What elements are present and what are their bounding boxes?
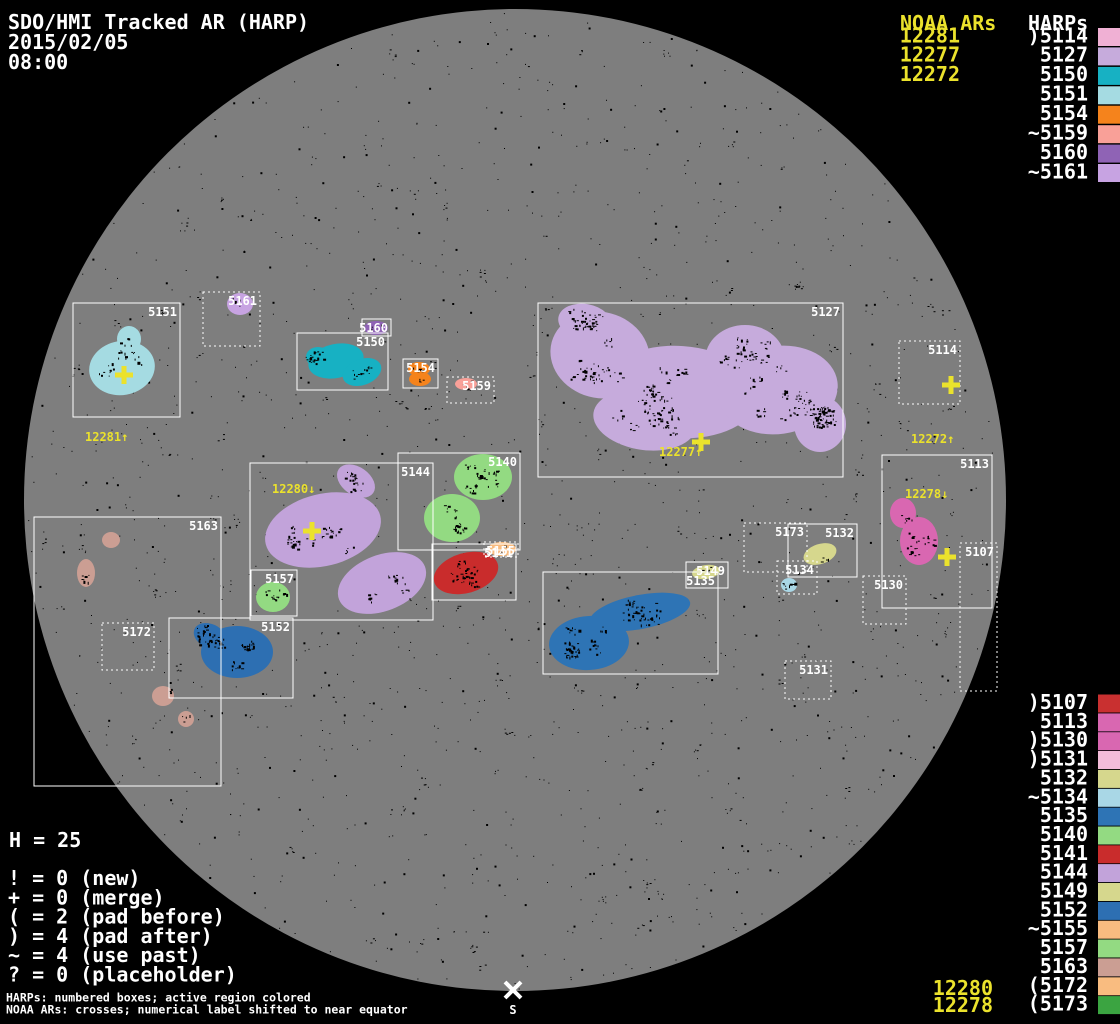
harp-color-swatch (1098, 28, 1120, 46)
harp-box-label-5144: 5144 (401, 465, 430, 479)
noaa-top-list: 122811227712272 (900, 23, 960, 86)
active-region-blob-5150 (306, 347, 330, 367)
harp-box-label-5152: 5152 (261, 620, 290, 634)
harp-list-item: ~5161 (1028, 159, 1088, 183)
active-region-blob-5163 (178, 711, 194, 727)
harp-box-label-5160: 5160 (359, 321, 388, 335)
harp-box-label-5173: 5173 (775, 525, 804, 539)
harp-color-swatch (1098, 883, 1120, 901)
harp-color-swatch (1098, 106, 1120, 124)
harp-color-swatch (1098, 86, 1120, 104)
footnote-noaa: NOAA ARs: crosses; numerical label shift… (6, 1003, 408, 1017)
harp-box-label-5149: 5149 (696, 564, 725, 578)
harp-color-swatch (1098, 827, 1120, 845)
harps-bottom-list: )51075113)5130)51315132~5134513551405141… (1028, 690, 1120, 1016)
active-region-blob-5113 (890, 498, 916, 528)
harp-color-swatch (1098, 770, 1120, 788)
harp-color-swatch (1098, 125, 1120, 143)
harp-box-label-5140: 5140 (488, 455, 517, 469)
noaa-disk-label: 12281↑ (85, 430, 128, 444)
harp-box-label-5161: 5161 (228, 294, 257, 308)
harp-color-swatch (1098, 977, 1120, 995)
harp-box-label-5107: 5107 (965, 545, 994, 559)
harp-color-swatch (1098, 789, 1120, 807)
noaa-list-item: 12278 (933, 993, 993, 1017)
harp-count: H = 25 (9, 828, 81, 852)
active-region-blob-5127 (705, 325, 785, 395)
harp-list-item: (5173 (1028, 992, 1088, 1016)
noaa-bottom-list: 1228012278 (933, 976, 993, 1017)
noaa-disk-label: 12272↑ (911, 432, 954, 446)
noaa-disk-label: 12277↑ (659, 445, 702, 459)
harp-color-swatch (1098, 902, 1120, 920)
harp-box-label-5131: 5131 (799, 663, 828, 677)
harp-color-swatch (1098, 751, 1120, 769)
harp-box-label-5130: 5130 (874, 578, 903, 592)
harp-box-label-5157: 5157 (265, 572, 294, 586)
harp-box-label-5155: 5155 (486, 544, 515, 558)
harp-box-label-5159: 5159 (462, 379, 491, 393)
harp-color-swatch (1098, 958, 1120, 976)
noaa-disk-label: 12278↓ (905, 487, 948, 501)
harp-color-swatch (1098, 940, 1120, 958)
harp-color-swatch (1098, 864, 1120, 882)
time-text: 08:00 (8, 50, 68, 74)
legend-item: ? = 0 (placeholder) (8, 963, 237, 987)
harp-box-label-5151: 5151 (148, 305, 177, 319)
active-region-blob-5163 (77, 559, 95, 587)
harp-color-swatch (1098, 695, 1120, 713)
harp-box-label-5134: 5134 (785, 563, 814, 577)
harp-box-label-5132: 5132 (825, 526, 854, 540)
south-label: S (509, 1003, 516, 1017)
harp-box-label-5113: 5113 (960, 457, 989, 471)
active-region-blob-5163 (152, 686, 174, 706)
harp-box-label-5127: 5127 (811, 305, 840, 319)
harp-color-swatch (1098, 67, 1120, 85)
harp-color-swatch (1098, 713, 1120, 731)
harp-tracking-view: 5151516151605150515451595127511451135107… (0, 0, 1120, 1024)
harp-color-swatch (1098, 808, 1120, 826)
noaa-disk-label: 12280↓ (272, 482, 315, 496)
sun-disk (24, 9, 1006, 991)
harp-color-swatch (1098, 164, 1120, 182)
harp-color-swatch (1098, 921, 1120, 939)
active-region-blob-5140 (424, 494, 480, 542)
harp-color-swatch (1098, 47, 1120, 65)
harp-box-label-5114: 5114 (928, 343, 957, 357)
harp-color-swatch (1098, 845, 1120, 863)
harp-box-label-5154: 5154 (406, 361, 435, 375)
harp-box-label-5150: 5150 (356, 335, 385, 349)
active-region-blob-5163 (102, 532, 120, 548)
harp-box-label-5163: 5163 (189, 519, 218, 533)
harp-box-label-5172: 5172 (122, 625, 151, 639)
noaa-list-item: 12272 (900, 62, 960, 86)
harp-color-swatch (1098, 732, 1120, 750)
harp-color-swatch (1098, 145, 1120, 163)
harp-color-swatch (1098, 996, 1120, 1014)
